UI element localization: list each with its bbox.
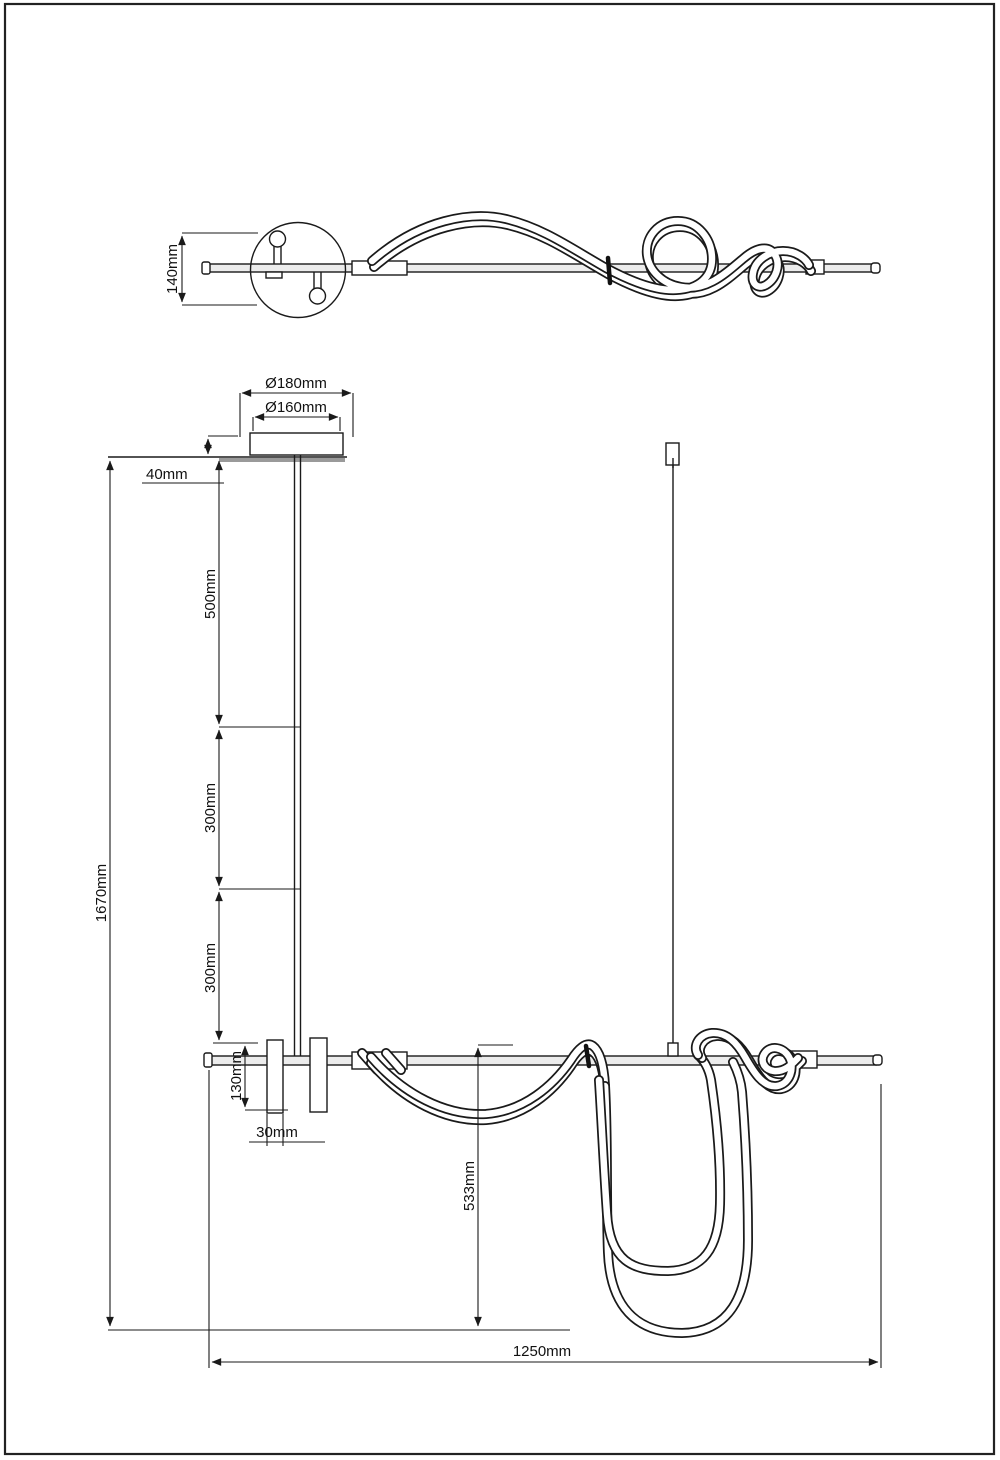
top-view-bar-left-cap [202,262,210,274]
canopy [250,433,343,455]
dim-label-canopy-height: 40mm [146,466,188,483]
dim-label-peg-width: 30mm [256,1124,298,1141]
technical-drawing: 140mm [0,0,1000,1460]
front-clamp [586,1046,589,1066]
top-view: 140mm [164,216,880,317]
dim-label-rod-300b: 300mm [202,943,219,993]
top-view-knob-2 [310,288,326,304]
dim-label-depth: 140mm [164,244,181,294]
dim-label-rod-300a: 300mm [202,783,219,833]
dim-label-tube-drop: 533mm [461,1161,478,1211]
top-view-led-tube [372,216,811,296]
front-bar-right-tip [873,1055,882,1065]
dim-label-fixture-length: 1250mm [513,1343,571,1360]
top-view-tab [266,272,282,278]
top-view-knob-1 [270,231,286,247]
peg-connector-1 [267,1040,283,1113]
dim-label-canopy-outer: Ø180mm [265,375,327,392]
drawing-page: 140mm [0,0,1000,1460]
dim-label-peg-height: 130mm [228,1051,245,1101]
front-bar-left-cap [204,1053,212,1067]
dim-label-rod-500: 500mm [202,569,219,619]
peg-connector-2 [310,1038,327,1112]
top-view-bar-right-tip [871,263,880,273]
wire-ferrule [668,1043,678,1056]
top-view-clamp [608,258,610,283]
front-led-tube [362,1033,802,1333]
dim-label-total-height: 1670mm [93,864,110,922]
front-view: Ø180mm Ø160mm 40mm 1670mm 500mm 300mm 30… [93,375,882,1368]
dim-label-canopy-inner: Ø160mm [265,399,327,416]
